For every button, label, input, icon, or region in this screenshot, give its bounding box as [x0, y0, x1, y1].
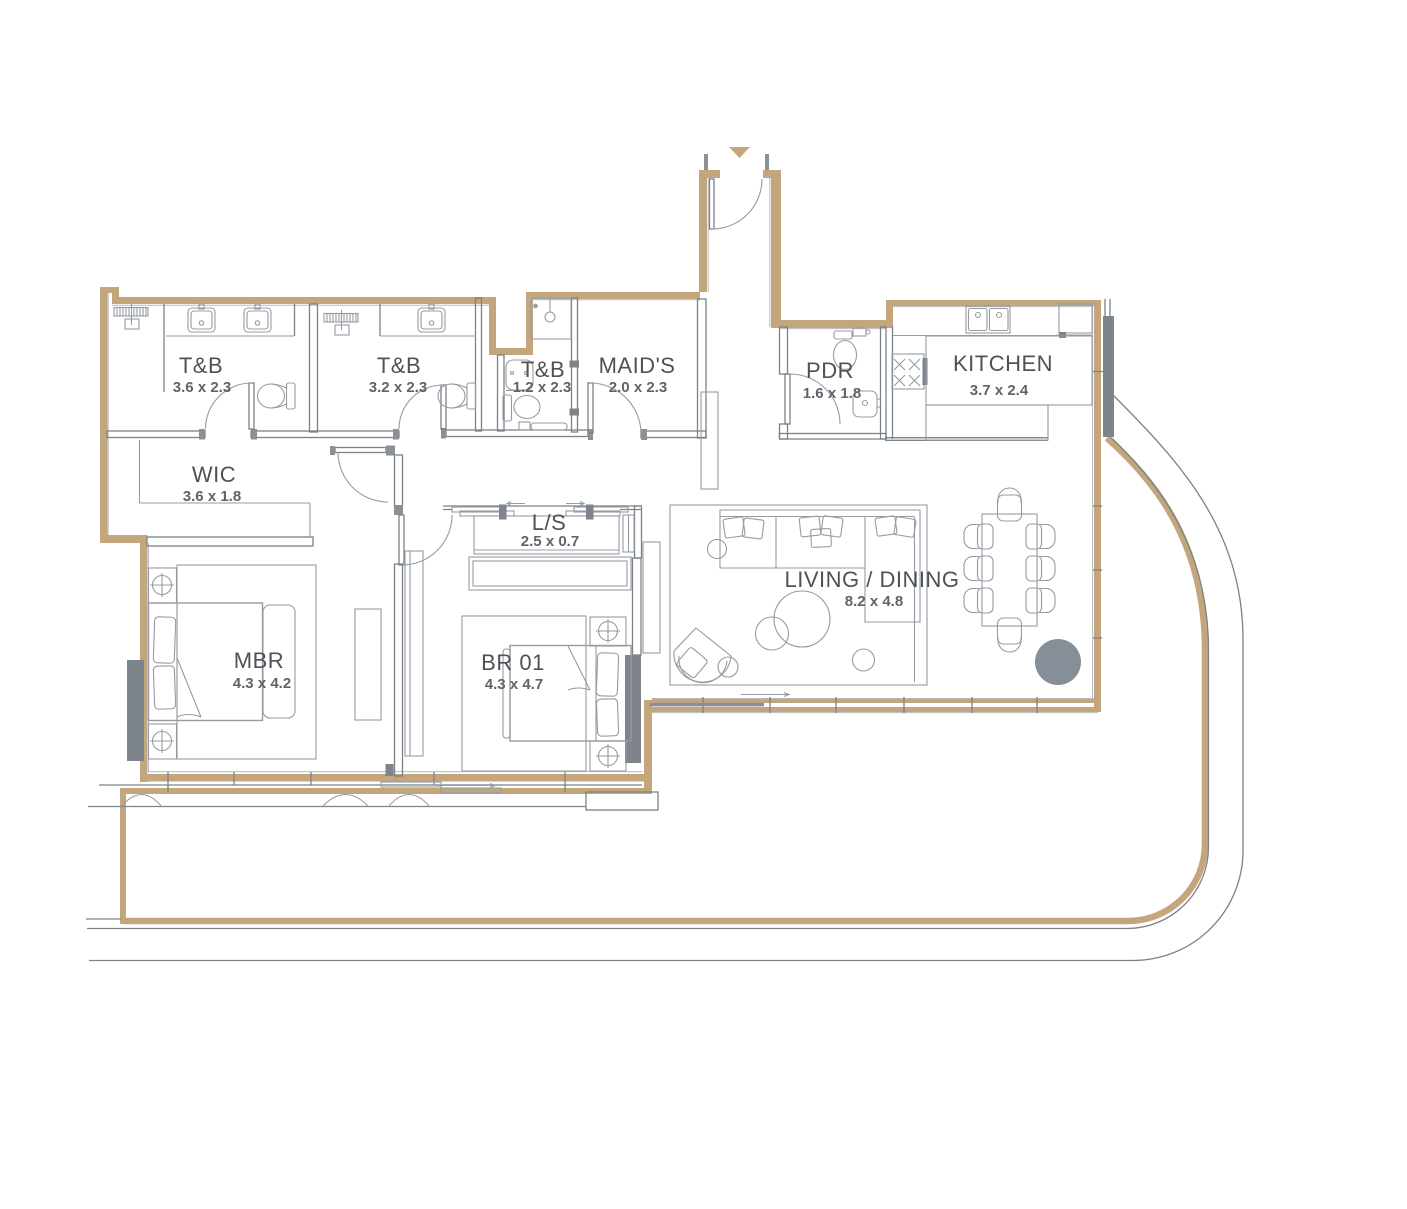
- svg-text:PDR: PDR: [806, 358, 854, 383]
- svg-text:3.6 x 1.8: 3.6 x 1.8: [183, 488, 241, 505]
- svg-text:1.2 x 2.3: 1.2 x 2.3: [513, 379, 571, 396]
- svg-text:3.6 x 2.3: 3.6 x 2.3: [173, 379, 231, 396]
- svg-text:2.0 x 2.3: 2.0 x 2.3: [609, 379, 667, 396]
- svg-text:4.3 x 4.7: 4.3 x 4.7: [485, 676, 543, 693]
- svg-text:T&B: T&B: [179, 353, 223, 378]
- svg-text:4.3 x 4.2: 4.3 x 4.2: [233, 675, 291, 692]
- svg-text:2.5 x 0.7: 2.5 x 0.7: [521, 533, 579, 550]
- svg-text:KITCHEN: KITCHEN: [953, 351, 1053, 376]
- svg-text:WIC: WIC: [192, 462, 236, 487]
- svg-text:BR 01: BR 01: [481, 650, 545, 675]
- svg-text:3.7 x 2.4: 3.7 x 2.4: [970, 382, 1029, 399]
- svg-text:MBR: MBR: [234, 648, 284, 673]
- svg-text:3.2 x 2.3: 3.2 x 2.3: [369, 379, 427, 396]
- svg-text:MAID'S: MAID'S: [599, 353, 676, 378]
- svg-text:LIVING / DINING: LIVING / DINING: [785, 567, 960, 592]
- svg-text:8.2 x 4.8: 8.2 x 4.8: [845, 593, 903, 610]
- svg-text:L/S: L/S: [532, 510, 567, 535]
- svg-text:T&B: T&B: [377, 353, 421, 378]
- svg-text:1.6 x 1.8: 1.6 x 1.8: [803, 385, 861, 402]
